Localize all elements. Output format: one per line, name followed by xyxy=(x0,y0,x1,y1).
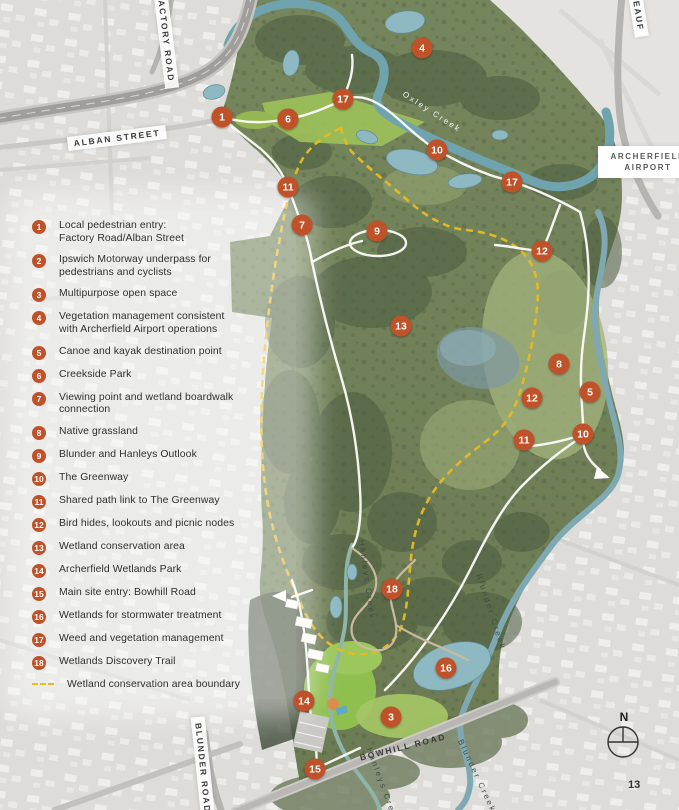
legend-item-label: Multipurpose open space xyxy=(59,288,177,301)
legend-item: 15 Main site entry: Bowhill Road xyxy=(32,587,288,601)
map-marker-12: 12 xyxy=(522,388,543,409)
legend-item-label: Vegetation management consistent with Ar… xyxy=(59,311,225,336)
legend-item-number: 6 xyxy=(32,369,46,383)
map-marker-9: 9 xyxy=(367,221,388,242)
map-marker-14: 14 xyxy=(294,691,315,712)
legend-item-number: 3 xyxy=(32,288,46,302)
legend-item: 6 Creekside Park xyxy=(32,369,288,383)
map-marker-1: 1 xyxy=(212,107,233,128)
map-marker-15: 15 xyxy=(305,759,326,780)
legend-item-label: Wetlands for stormwater treatment xyxy=(59,610,222,623)
legend-item-label: Local pedestrian entry: Factory Road/Alb… xyxy=(59,220,184,245)
legend-item-number: 1 xyxy=(32,220,46,234)
legend-item: 7 Viewing point and wetland boardwalk co… xyxy=(32,392,288,417)
map-marker-3: 3 xyxy=(381,707,402,728)
legend-item: 16 Wetlands for stormwater treatment xyxy=(32,610,288,624)
map-marker-11: 11 xyxy=(514,430,535,451)
legend-item-label: Shared path link to The Greenway xyxy=(59,495,220,508)
map-marker-12: 12 xyxy=(532,241,553,262)
legend-item-label: Creekside Park xyxy=(59,369,131,382)
airport-label: ARCHERFIELD AIRPORT xyxy=(598,146,679,178)
legend-item: 5 Canoe and kayak destination point xyxy=(32,346,288,360)
legend-item-label: Viewing point and wetland boardwalk conn… xyxy=(59,392,233,417)
legend-item-number: 11 xyxy=(32,495,46,509)
airport-label-line1: ARCHERFIELD xyxy=(602,151,679,162)
legend-item-number: 18 xyxy=(32,656,46,670)
legend-item-label: Archerfield Wetlands Park xyxy=(59,564,181,577)
airport-label-line2: AIRPORT xyxy=(602,162,679,173)
page-number: 13 xyxy=(628,779,640,791)
legend-item-number: 16 xyxy=(32,610,46,624)
legend-item-label: Blunder and Hanleys Outlook xyxy=(59,449,197,462)
legend-item: 14 Archerfield Wetlands Park xyxy=(32,564,288,578)
legend-item-number: 14 xyxy=(32,564,46,578)
legend-item: 17 Weed and vegetation management xyxy=(32,633,288,647)
legend-item: 12 Bird hides, lookouts and picnic nodes xyxy=(32,518,288,532)
legend-item: 4 Vegetation management consistent with … xyxy=(32,311,288,336)
legend-boundary-label: Wetland conservation area boundary xyxy=(67,679,240,692)
legend-boundary-item: Wetland conservation area boundary xyxy=(32,679,288,692)
legend-item-label: Wetlands Discovery Trail xyxy=(59,656,176,669)
legend-item-number: 9 xyxy=(32,449,46,463)
legend-item-number: 2 xyxy=(32,254,46,268)
legend-item: 9 Blunder and Hanleys Outlook xyxy=(32,449,288,463)
legend-item-number: 17 xyxy=(32,633,46,647)
map-page: 1 Local pedestrian entry: Factory Road/A… xyxy=(0,0,679,810)
legend-item-label: Ipswich Motorway underpass for pedestria… xyxy=(59,254,211,279)
map-marker-7: 7 xyxy=(292,215,313,236)
legend-item-label: Canoe and kayak destination point xyxy=(59,346,222,359)
legend-item-number: 4 xyxy=(32,311,46,325)
north-label: N xyxy=(604,710,644,724)
legend-item-label: Main site entry: Bowhill Road xyxy=(59,587,196,600)
map-marker-10: 10 xyxy=(427,140,448,161)
legend-item-number: 8 xyxy=(32,426,46,440)
map-marker-8: 8 xyxy=(549,354,570,375)
legend-item-label: Wetland conservation area xyxy=(59,541,185,554)
legend-item: 13 Wetland conservation area xyxy=(32,541,288,555)
map-marker-11: 11 xyxy=(278,177,299,198)
legend-item: 2 Ipswich Motorway underpass for pedestr… xyxy=(32,254,288,279)
legend-item-number: 7 xyxy=(32,392,46,406)
map-marker-18: 18 xyxy=(382,579,403,600)
legend-item-label: Weed and vegetation management xyxy=(59,633,224,646)
legend-item-label: Bird hides, lookouts and picnic nodes xyxy=(59,518,234,531)
legend-item-number: 13 xyxy=(32,541,46,555)
map-marker-6: 6 xyxy=(278,109,299,130)
legend-item-number: 5 xyxy=(32,346,46,360)
map-marker-4: 4 xyxy=(412,38,433,59)
legend-item-number: 10 xyxy=(32,472,46,486)
legend-item: 1 Local pedestrian entry: Factory Road/A… xyxy=(32,220,288,245)
map-marker-10: 10 xyxy=(573,424,594,445)
map-marker-17: 17 xyxy=(333,89,354,110)
legend-item: 3 Multipurpose open space xyxy=(32,288,288,302)
legend-item: 10 The Greenway xyxy=(32,472,288,486)
map-marker-13: 13 xyxy=(391,316,412,337)
compass: N xyxy=(604,710,644,726)
legend-list: 1 Local pedestrian entry: Factory Road/A… xyxy=(32,220,288,691)
legend-item: 18 Wetlands Discovery Trail xyxy=(32,656,288,670)
map-marker-17: 17 xyxy=(502,172,523,193)
map-marker-16: 16 xyxy=(436,658,457,679)
dashed-line-swatch xyxy=(32,683,54,686)
legend-panel: 1 Local pedestrian entry: Factory Road/A… xyxy=(24,210,296,699)
legend-item-label: The Greenway xyxy=(59,472,128,485)
legend-item: 11 Shared path link to The Greenway xyxy=(32,495,288,509)
legend-item: 8 Native grassland xyxy=(32,426,288,440)
legend-item-label: Native grassland xyxy=(59,426,138,439)
legend-item-number: 15 xyxy=(32,587,46,601)
legend-item-number: 12 xyxy=(32,518,46,532)
map-marker-5: 5 xyxy=(580,382,601,403)
